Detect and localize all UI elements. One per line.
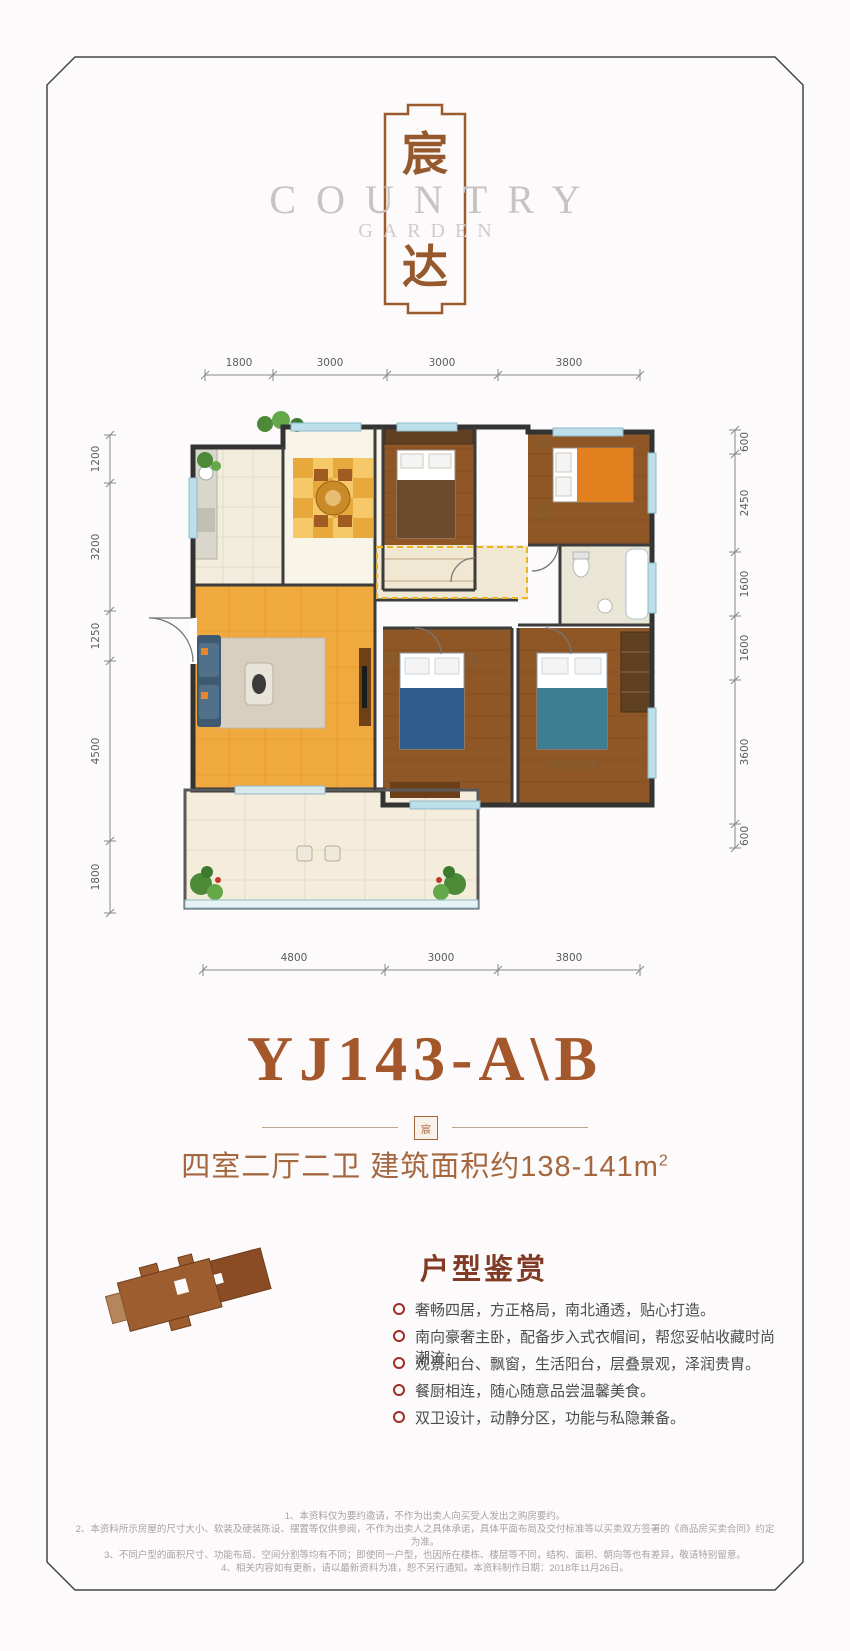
bed-bench <box>547 760 597 770</box>
dim-label: 1600 <box>739 571 751 598</box>
feature-item: 奢畅四居，方正格局，南北通透，贴心打造。 <box>393 1299 783 1326</box>
divider-line-right <box>452 1127 588 1128</box>
unit-spec: 四室二厅二卫 建筑面积约138-141m2 <box>0 1143 850 1185</box>
disclaimer-line: 1、本资料仅为要约邀请，不作为出卖人向买受人发出之购房要约。 <box>75 1510 775 1523</box>
logo-english-line1: COUNTRY <box>0 176 850 223</box>
door-swing <box>532 545 558 571</box>
feature-item: 观景阳台、飘窗，生活阳台，层叠景观，泽润贵胄。 <box>393 1353 783 1380</box>
dim-label: 3200 <box>90 534 102 561</box>
disclaimer-line: 4、相关内容如有更新，请以最新资料为准，恕不另行通知。本资料制作日期：2018年… <box>75 1562 775 1575</box>
bullet-icon <box>393 1384 405 1396</box>
bullet-icon <box>393 1303 405 1315</box>
dim-label: 2450 <box>739 490 751 517</box>
basin <box>598 599 612 613</box>
dim-label: 3000 <box>428 952 455 964</box>
dim-label: 600 <box>739 432 751 452</box>
features-list: 奢畅四居，方正格局，南北通透，贴心打造。 南向豪奢主卧，配备步入式衣帽间，帮您妥… <box>393 1299 783 1434</box>
features-heading: 户型鉴赏 <box>420 1246 548 1288</box>
unit-spec-text: 四室二厅二卫 建筑面积约138-141m <box>181 1151 659 1183</box>
window <box>648 453 656 513</box>
dim-label: 1250 <box>90 623 102 650</box>
feature-item: 南向豪奢主卧，配备步入式衣帽间，帮您妥帖收藏时尚潮流； <box>393 1326 783 1353</box>
balcony-door <box>235 786 325 794</box>
nightstand <box>537 506 549 518</box>
bullet-icon <box>393 1411 405 1423</box>
feature-item: 双卫设计，动静分区，功能与私隐兼备。 <box>393 1407 783 1434</box>
window <box>189 478 197 538</box>
window <box>397 423 457 431</box>
nightstand <box>537 436 549 448</box>
dining-chair <box>314 515 328 527</box>
unit-model-title: YJ143-A\B <box>0 1022 850 1096</box>
dim-label: 3800 <box>556 952 583 964</box>
dim-label: 3000 <box>317 357 344 369</box>
dining-chair <box>338 469 352 481</box>
feature-text: 餐厨相连，随心随意品尝温馨美食。 <box>415 1380 655 1401</box>
feature-text: 双卫设计，动静分区，功能与私隐兼备。 <box>415 1407 685 1428</box>
logo-english-line2: GARDEN <box>0 220 850 243</box>
dining-chair <box>338 515 352 527</box>
window <box>291 423 361 431</box>
room-corridor-closet <box>375 545 528 600</box>
brochure-page: 宸 达 COUNTRY GARDEN <box>0 0 850 1651</box>
seal-stamp-icon: 宸 <box>414 1116 438 1140</box>
dim-label: 1800 <box>90 864 102 891</box>
balcony-chair <box>297 846 312 861</box>
bathtub <box>626 549 648 619</box>
dim-label: 3800 <box>556 357 583 369</box>
dim-label: 1800 <box>226 357 253 369</box>
dim-label: 1600 <box>739 635 751 662</box>
dining-chair <box>314 469 328 481</box>
dim-label: 3000 <box>429 357 456 369</box>
dining-rug <box>293 458 373 538</box>
tv <box>362 666 367 708</box>
dim-label: 4500 <box>90 738 102 765</box>
sofa-cushion <box>201 648 208 655</box>
mini-key-plan <box>105 1218 285 1348</box>
window <box>553 428 623 436</box>
balcony-chair <box>325 846 340 861</box>
bullet-icon <box>393 1357 405 1369</box>
nightstand <box>385 653 397 665</box>
divider-line-left <box>262 1127 398 1128</box>
disclaimer-line: 3、不同户型的面积尺寸、功能布局、空间分割等均有不同；即使同一户型，也因所在楼栋… <box>75 1549 775 1562</box>
floor-plan: 1800 3000 3000 3800 4800 3000 3800 1200 … <box>85 348 765 988</box>
nightstand <box>467 653 479 665</box>
disclaimer-block: 1、本资料仅为要约邀请，不作为出卖人向买受人发出之购房要约。 2、本资料所示房屋… <box>75 1510 775 1575</box>
entry-door-swing <box>149 618 193 662</box>
dim-label: 4800 <box>281 952 308 964</box>
sofa-cushion <box>201 692 208 699</box>
feature-text: 观景阳台、飘窗，生活阳台，层叠景观，泽润贵胄。 <box>415 1353 760 1374</box>
kitchen-sink <box>199 466 213 480</box>
dim-label: 3600 <box>739 739 751 766</box>
feature-text: 奢畅四居，方正格局，南北通透，贴心打造。 <box>415 1299 715 1320</box>
window <box>648 563 656 613</box>
bay-window <box>410 801 480 809</box>
window <box>648 708 656 778</box>
logo-hanzi-top: 宸 <box>382 132 468 178</box>
unit-spec-sup: 2 <box>659 1152 669 1169</box>
bullet-icon <box>393 1330 405 1342</box>
dim-label: 1200 <box>90 446 102 473</box>
disclaimer-line: 2、本资料所示房屋的尺寸大小、软装及硬装陈设、摆置等仅供参阅，不作为出卖人之具体… <box>75 1523 775 1549</box>
balcony-rail <box>185 900 478 908</box>
dim-label: 600 <box>739 826 751 846</box>
kitchen-stove <box>197 508 215 532</box>
logo-hanzi-bottom: 达 <box>382 245 468 291</box>
feature-item: 餐厨相连，随心随意品尝温馨美食。 <box>393 1380 783 1407</box>
